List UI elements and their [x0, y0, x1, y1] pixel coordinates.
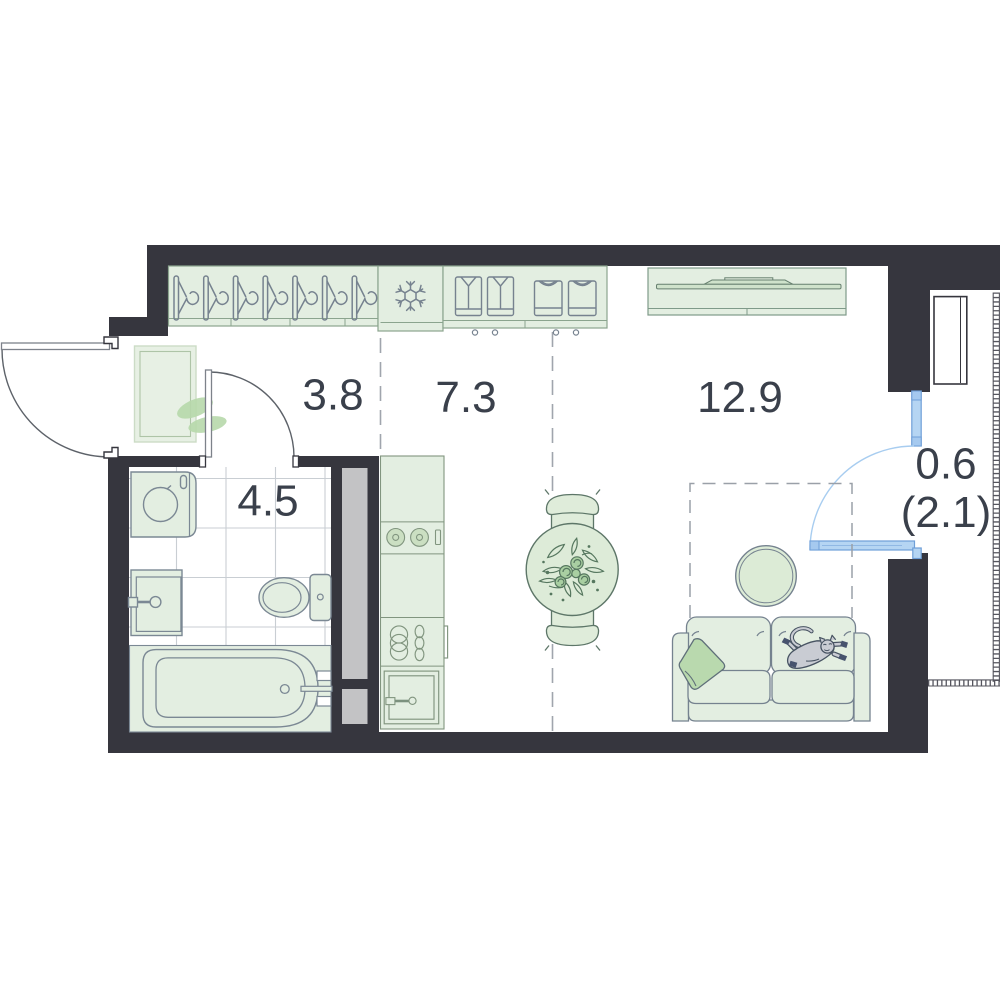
svg-text:12.9: 12.9 — [697, 373, 783, 422]
svg-text:7.3: 7.3 — [435, 373, 496, 422]
svg-text:4.5: 4.5 — [237, 477, 298, 526]
svg-text:3.8: 3.8 — [302, 371, 363, 420]
svg-text:0.6: 0.6 — [915, 440, 976, 489]
svg-text:(2.1): (2.1) — [901, 488, 991, 537]
